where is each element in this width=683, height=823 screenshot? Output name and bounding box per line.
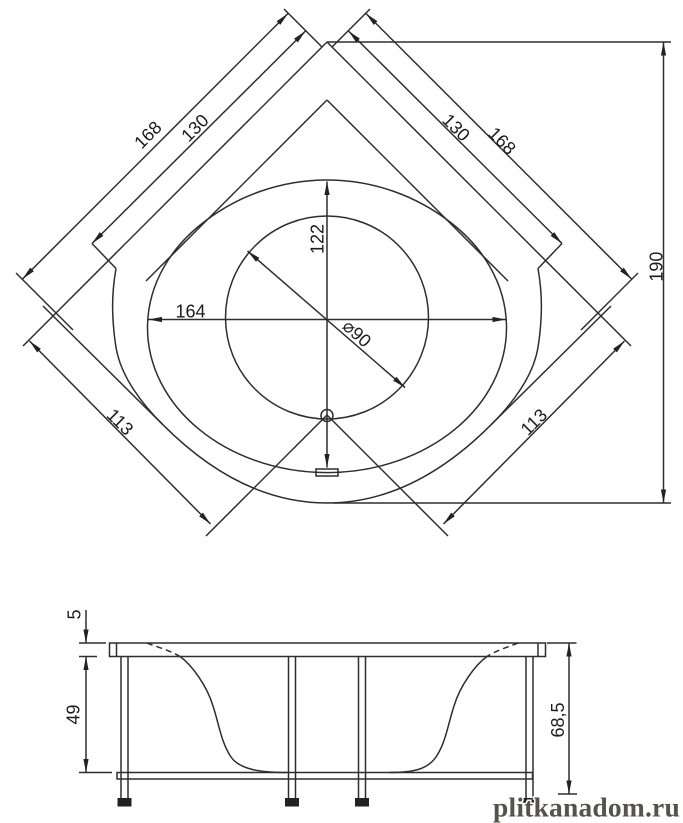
- svg-text:plitkanadom.ru: plitkanadom.ru: [493, 792, 680, 823]
- svg-text:130: 130: [177, 110, 212, 145]
- svg-text:122: 122: [308, 224, 328, 254]
- svg-text:168: 168: [130, 117, 165, 152]
- svg-text:5: 5: [65, 609, 85, 619]
- svg-text:164: 164: [175, 302, 205, 322]
- svg-text:168: 168: [484, 123, 519, 158]
- svg-text:⌀90: ⌀90: [339, 316, 375, 352]
- svg-text:113: 113: [103, 405, 137, 439]
- svg-text:68,5: 68,5: [548, 702, 568, 737]
- svg-text:190: 190: [647, 252, 667, 282]
- svg-text:113: 113: [517, 405, 551, 439]
- svg-text:49: 49: [64, 704, 84, 724]
